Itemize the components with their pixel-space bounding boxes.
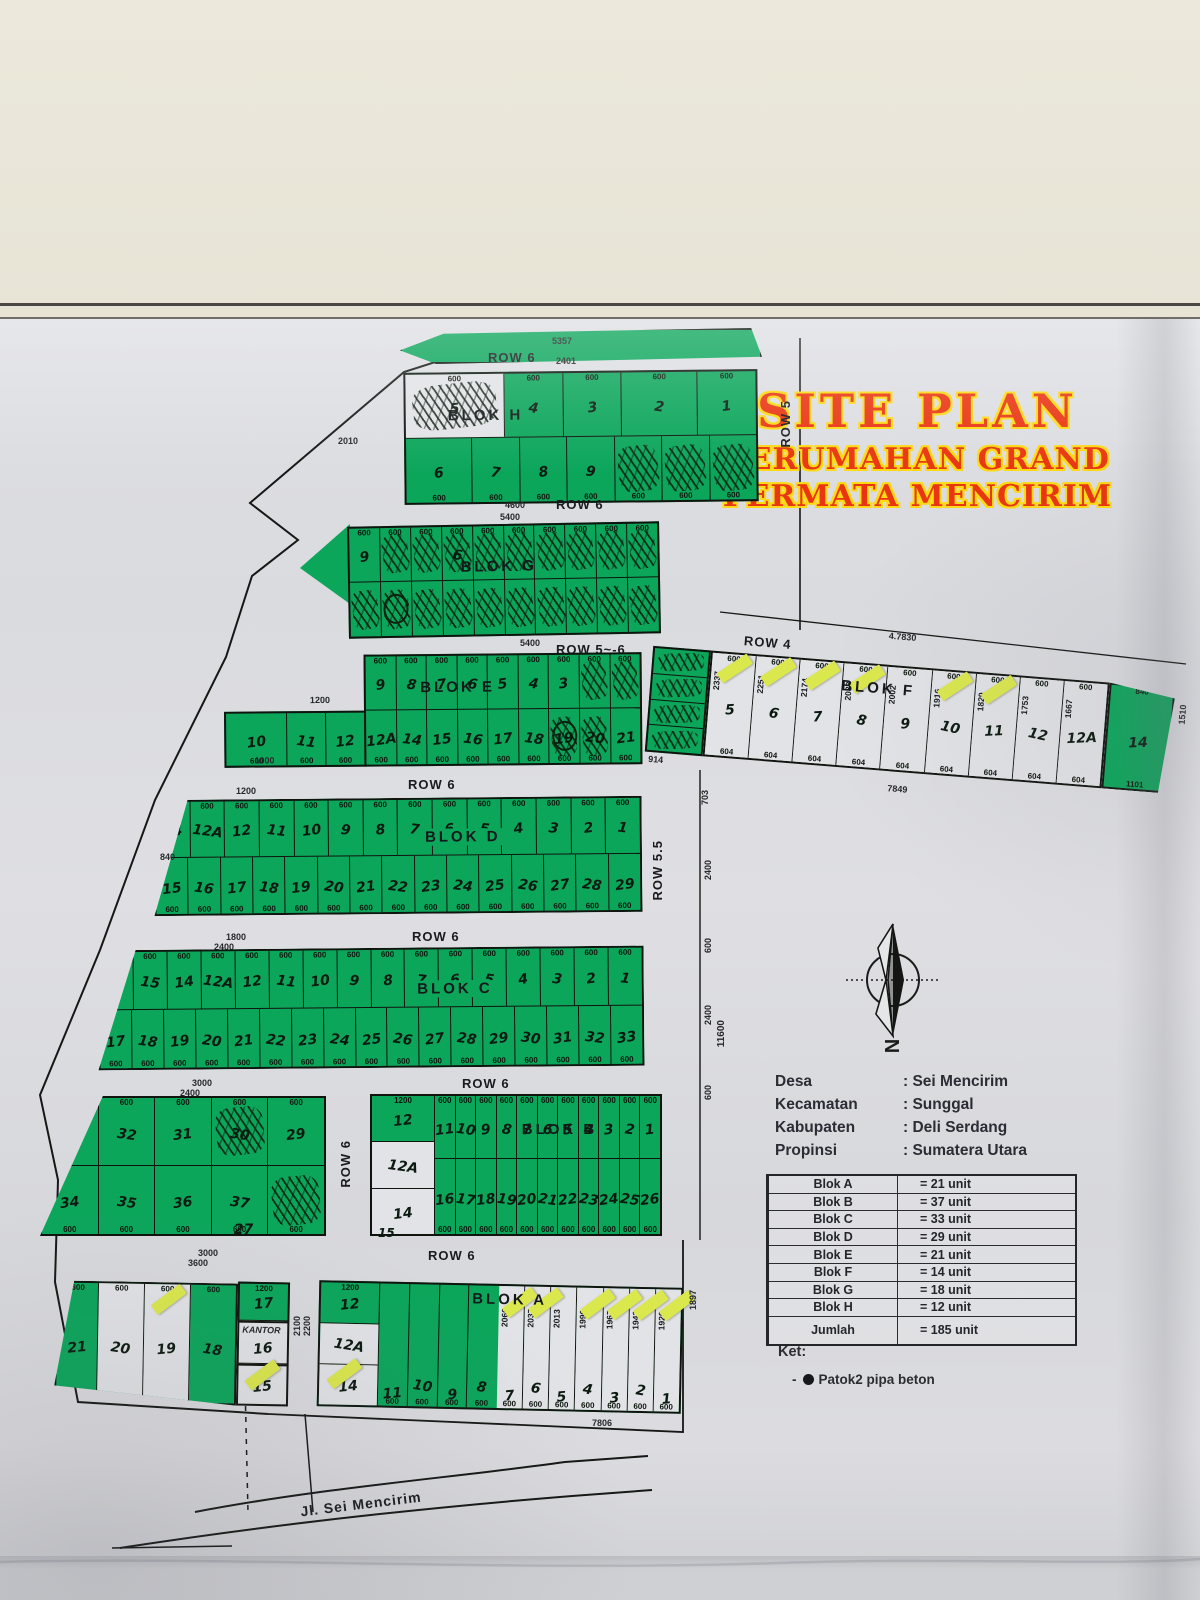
plot-cell: 60029 — [609, 854, 641, 910]
plot-dimension: 600 — [538, 1225, 558, 1234]
plot-dimension: 600 — [473, 949, 506, 958]
plot-number: 20 — [317, 877, 350, 897]
blok-f-cells: 6006042337560060422516600604217476006042… — [705, 653, 1108, 786]
plot-dimension: 600 — [456, 1225, 476, 1234]
plot-cell: 60020135 — [549, 1287, 578, 1410]
blok-a-office-column: 17 1200 KANTOR 16 15 — [236, 1282, 290, 1407]
plot-number: 7 — [796, 709, 840, 727]
plot-dimension: 600 — [396, 656, 426, 665]
plot-dimension: 600 — [442, 527, 472, 537]
plot-dimension: 600 — [541, 948, 574, 957]
plot-cell: 60027 — [544, 854, 577, 910]
plot-cell: 60011 — [287, 713, 326, 765]
plot-dimension: 600 — [435, 1096, 455, 1105]
plot-number: 3 — [536, 819, 571, 839]
plot-cell: 6005 — [405, 374, 505, 438]
plot-cell: 60021 — [350, 856, 383, 912]
plot-cell: 60014 — [167, 951, 201, 1008]
plot-cell: 60024 — [324, 1008, 356, 1066]
info-value: : Sunggal — [903, 1096, 974, 1119]
dim-4600: 4600 — [505, 500, 525, 510]
plot-cell: 60015 — [133, 952, 167, 1009]
plot-dimension: 600 — [620, 1096, 640, 1105]
plot-dimension: 600 — [42, 1225, 98, 1234]
row6-top-label: ROW 6 — [488, 350, 536, 365]
plot-dimension: 600 — [517, 1225, 537, 1234]
dim-3000-cb: 3000 — [192, 1078, 212, 1088]
plot-number: 33 — [610, 1028, 643, 1048]
plot-number: 6 — [751, 701, 797, 726]
plot-number: 36 — [154, 1192, 211, 1215]
plot-cell: 600 — [534, 525, 566, 579]
blok-a-left-row: 60021600206001960018 — [56, 1282, 236, 1403]
table-row: Blok H= 12 unit — [769, 1299, 1075, 1317]
plot-dimension: 600 — [563, 373, 621, 383]
plot-number: 16 — [188, 879, 221, 899]
plot-cell — [535, 579, 567, 634]
plot-dimension: 604 — [793, 752, 837, 764]
plot-cell: 6007 — [398, 800, 433, 855]
photo-of-site-plan-banner: { "title":{"line1":"SITE PLAN","line2":"… — [0, 0, 1200, 1600]
plot-cell: 6004 — [518, 655, 549, 708]
plot-number: 21 — [349, 877, 382, 897]
table-row: Blok A= 21 unit — [769, 1176, 1075, 1194]
plot-cell — [474, 580, 506, 635]
kantor-label: KANTOR — [242, 1325, 281, 1336]
plot-dimension: 2037 — [526, 1308, 536, 1327]
blok-a: 12001212A14 600116001060096008 600206076… — [317, 1280, 684, 1414]
plot-cell: 60010 — [303, 950, 337, 1007]
plot-cell: 60018 — [132, 1010, 164, 1068]
plot-dimension: 600 — [756, 656, 800, 668]
plot-number: 9 — [349, 548, 381, 568]
plot-dimension: 600 — [383, 903, 414, 912]
plot-dimension: 2060 — [499, 1308, 509, 1327]
plot-number: 25 — [355, 1030, 388, 1050]
plot-dimension: 600 — [318, 903, 349, 912]
plot-cell: 60011 — [269, 951, 303, 1008]
plot-cell: 6008 — [363, 800, 398, 855]
plot-cell: 6006 — [406, 438, 473, 503]
plot-dimension: 600 — [133, 952, 166, 961]
plot-dimension: 1943 — [630, 1311, 640, 1330]
plot-cell — [597, 578, 629, 633]
plot-dimension: 600 — [269, 951, 302, 960]
plot-cell: 60032 — [99, 1098, 156, 1165]
info-value: : Deli Serdang — [903, 1119, 1007, 1142]
blok-c: 60016600156001460012A6001260011600106009… — [97, 946, 644, 1071]
plot-number: 12 — [235, 972, 270, 992]
plot-cell: 60016 — [435, 1159, 456, 1234]
plot-dimension: 600 — [523, 1399, 548, 1409]
plot-cell: 60011 — [435, 1096, 456, 1158]
blok-b: 12001212A14 15 6001160010600960086007600… — [370, 1094, 662, 1236]
plot-dimension: 604 — [1013, 770, 1057, 782]
plot-dimension: 600 — [99, 1283, 144, 1293]
plot-dimension: 600 — [1020, 677, 1064, 689]
info-label: Kabupaten — [775, 1119, 903, 1142]
plot-number: 18 — [475, 1191, 496, 1209]
plot-cell: 6002 — [620, 1096, 641, 1158]
plot-dimension: 600 — [497, 1225, 517, 1234]
plot-number: 8 — [466, 1377, 497, 1397]
compass-rose-icon: N — [838, 918, 948, 1058]
plot-dimension: 600 — [640, 1225, 660, 1234]
plot-cell: 120012 — [320, 1282, 379, 1324]
plot-dimension: 600 — [476, 1225, 496, 1234]
plot-number: 14 — [371, 1202, 434, 1225]
legend-note-title: Ket: — [778, 1344, 806, 1360]
plot-dimension: 600 — [544, 901, 575, 910]
info-label: Desa — [775, 1073, 903, 1096]
plot-cell: 6007 — [472, 438, 520, 502]
dim-1897: 1897 — [688, 1290, 698, 1310]
plot-cell: 60025 — [620, 1159, 641, 1234]
plot-cell: 60025 — [479, 855, 512, 911]
plot-cell: 60010 — [407, 1284, 439, 1407]
plot-14-f-label: 14 — [1107, 734, 1170, 753]
plot-cell: 600 — [596, 524, 628, 578]
blok-e-row2: 60012A6001460015600166001760018600196002… — [366, 708, 640, 764]
plot-number: 12 — [320, 1294, 379, 1316]
plot-number: 15 — [426, 730, 457, 750]
plot-number: 19 — [143, 1339, 189, 1360]
plot-dimension: 600 — [504, 373, 562, 383]
plot-dimension: 2013 — [552, 1309, 562, 1328]
plot-number: 11 — [269, 972, 304, 992]
blok-e: 600106001160012 600960086007600660056004… — [224, 652, 643, 768]
plot-dimension: 600 — [228, 1058, 259, 1067]
plot-dimension: 2174 — [799, 678, 810, 698]
dim-840-f: 840 — [1111, 685, 1174, 699]
row55-label: ROW 5.5 — [650, 840, 665, 900]
plot-number: 3 — [598, 1121, 619, 1139]
plot-dimension: 600 — [577, 901, 608, 910]
plot-dimension: 600 — [518, 655, 548, 664]
plot-dimension: 600 — [428, 755, 458, 764]
plot-cell: 60019 — [285, 857, 318, 913]
plot-dimension: 600 — [324, 1057, 355, 1066]
plot-cell: 60021 — [538, 1159, 559, 1234]
plot-16-label: 16 — [238, 1339, 287, 1360]
plot-cell: 6001 — [609, 948, 642, 1005]
dim-2401: 2401 — [556, 356, 576, 366]
plot-cell: 60029 — [268, 1098, 324, 1165]
plot-dimension: 600 — [579, 1096, 599, 1105]
plot-number: 1 — [640, 1121, 661, 1139]
plot-dimension: 600 — [800, 660, 844, 672]
plot-number: 11 — [259, 821, 294, 841]
plot-number: 10 — [455, 1121, 477, 1140]
dim-1800: 1800 — [226, 932, 246, 942]
plot-cell: 60026 — [640, 1159, 660, 1234]
blok-c-label: BLOK C — [414, 980, 496, 998]
plot-dimension: 600 — [1064, 681, 1108, 693]
dim-3000-ba: 3000 — [198, 1248, 218, 1258]
plot-cell: 60018 — [189, 1285, 236, 1404]
plot-cell: 6002 — [571, 798, 606, 853]
plot-number: 8 — [496, 1121, 518, 1140]
plot-number: 22 — [382, 877, 415, 897]
plot-number: 27 — [543, 875, 576, 895]
plot-dimension: 600 — [337, 950, 370, 959]
plot-cell: 6003 — [541, 948, 575, 1005]
plot-dimension: 600 — [558, 1225, 578, 1234]
plot-dimension: 600 — [579, 1225, 599, 1234]
blok-d-label: BLOK D — [422, 828, 504, 846]
plot-cell: 60012A — [366, 710, 397, 764]
plot-cell: 60015 — [427, 710, 458, 764]
plot-dimension: 604 — [749, 749, 793, 761]
plot-cell: 6007 — [405, 949, 439, 1006]
plot-dimension: 600 — [407, 493, 472, 503]
plot-cell: 6001 — [698, 371, 756, 435]
plot-dimension: 600 — [549, 655, 579, 664]
plot-cell: 60036 — [155, 1166, 212, 1234]
plot-number: 22 — [259, 1031, 292, 1051]
plot-cell: 60019673 — [601, 1288, 630, 1411]
blok-c-row2: 6001760018600196002060021600226002360024… — [100, 1006, 642, 1069]
plot-dimension: 600 — [611, 753, 641, 762]
plot-number: 17 — [488, 729, 519, 749]
blok-e-label: BLOK E — [420, 678, 495, 696]
row4-label: ROW 4 — [743, 633, 792, 652]
plot-number: 31 — [546, 1028, 579, 1048]
dim-5357: 5357 — [552, 336, 572, 346]
plot-dimension: 600 — [497, 1096, 517, 1105]
info-label: Kecamatan — [775, 1096, 903, 1119]
plot-cell: 6008 — [520, 437, 568, 501]
plot-dimension: 600 — [380, 528, 410, 538]
row6-hg-label: ROW 6 — [556, 497, 604, 512]
plot-number: 21 — [227, 1031, 260, 1051]
plot-dimension: 600 — [476, 1096, 496, 1105]
plot-dimension: 600 — [201, 951, 234, 960]
plot-cell: 60012 — [235, 951, 269, 1008]
plot-cell: 60012A — [201, 951, 235, 1008]
plot-dimension: 600 — [294, 801, 328, 810]
plot-cell: 60023 — [415, 856, 448, 912]
dim-1101-f: 1101 — [1103, 777, 1166, 791]
plot-dimension: 600 — [458, 755, 488, 764]
plot-dimension: 600 — [405, 949, 438, 958]
plot-dimension: 1829 — [975, 692, 986, 712]
plot-dimension: 600 — [502, 799, 536, 808]
plot-dimension: 600 — [350, 903, 381, 912]
plot-number: 9 — [328, 821, 363, 841]
plot-dimension: 600 — [286, 904, 317, 913]
plot-number: 8 — [519, 462, 567, 484]
plot-number: 9 — [475, 1121, 496, 1139]
plot-cell: 6003 — [563, 373, 622, 437]
plot-dimension: 600 — [447, 902, 478, 911]
plot-number: 10 — [302, 972, 337, 992]
plot-number: 3 — [540, 970, 575, 990]
plot-dimension: 600 — [534, 525, 564, 535]
plot-number: 18 — [131, 1032, 164, 1052]
plot-dimension: 600 — [575, 1401, 600, 1411]
dim-1000-e: 1000 — [254, 755, 274, 765]
plot-cell: 6003 — [599, 1096, 620, 1158]
plot-cell: 600 — [615, 436, 663, 500]
plot-dimension: 600 — [415, 903, 446, 912]
plot-cell: 60023 — [292, 1008, 324, 1066]
plot-dimension: 600 — [888, 667, 932, 679]
plot-number: 35 — [98, 1192, 155, 1216]
row6-ba-label: ROW 6 — [428, 1248, 476, 1263]
plot-number: 6 — [522, 1379, 549, 1399]
plot-number: 14 — [318, 1376, 377, 1398]
plot-dimension: 1967 — [604, 1310, 614, 1329]
plot-dimension: 600 — [288, 756, 326, 765]
plot-number: 1 — [605, 818, 640, 838]
plot-number: 12 — [371, 1109, 434, 1132]
dim-3600-ba: 3600 — [188, 1258, 208, 1268]
plot-cell: 60022 — [382, 856, 415, 912]
plot-number: 6 — [406, 461, 473, 485]
plot-number: 3 — [601, 1389, 627, 1407]
plot-dimension: 600 — [405, 374, 503, 384]
plot-dimension: 600 — [452, 1056, 483, 1065]
plot-cell: 60010 — [456, 1096, 477, 1158]
plot-dimension: 600 — [609, 901, 640, 910]
plot-dimension: 600 — [349, 528, 379, 538]
plot-number: 10 — [225, 730, 287, 754]
plot-dimension: 600 — [411, 527, 441, 537]
dim-600-r2: 600 — [703, 1085, 713, 1100]
plot-number: 2 — [627, 1381, 654, 1401]
plot-cell — [443, 581, 475, 636]
dim-7849: 7849 — [887, 783, 908, 795]
blok-b-annex-row2: 60034600356003660037600 — [42, 1166, 324, 1234]
plot-cell: 600 — [662, 436, 710, 500]
plot-dimension: 600 — [610, 654, 640, 663]
plot-cell: 6001 — [606, 798, 640, 853]
plot-cell: 60019 — [497, 1159, 518, 1234]
plot-number: 12A — [319, 1333, 379, 1358]
plot-number: 20 — [579, 728, 610, 748]
plot-cell: 60031 — [155, 1098, 212, 1165]
plot-number: 12A — [190, 822, 225, 842]
plot-dimension: 600 — [327, 756, 365, 765]
plot-cell: 60028 — [576, 854, 609, 910]
plot-dimension: 600 — [253, 904, 284, 913]
blok-a-left-column: 12001212A14 — [319, 1282, 380, 1405]
blok-h-row2: 6006600760086009600600600 — [406, 435, 757, 503]
plot-cell: 600604166712A — [1056, 681, 1107, 786]
plot-cell: 6009 — [349, 528, 381, 582]
plot-dimension: 1916 — [931, 689, 942, 709]
plot-dimension: 600 — [517, 1096, 537, 1105]
plot-number: 17 — [455, 1191, 477, 1210]
plot-cell: 60024 — [447, 855, 480, 911]
dim-600-r1: 600 — [703, 938, 713, 953]
banner-bottom-shadow — [0, 1556, 1200, 1600]
plot-cell: 60035 — [99, 1166, 156, 1234]
banner-rod-line — [0, 303, 1200, 306]
plot-dimension: 600 — [292, 1057, 323, 1066]
plot-cell: 6004 — [507, 949, 541, 1006]
plot-cell: 12A — [372, 1142, 434, 1188]
plot-cell: 60017 — [488, 709, 519, 763]
plot-cell: 60021 — [610, 708, 640, 762]
plot-dimension: 600 — [932, 670, 976, 682]
plot-cell: 60017 — [456, 1159, 477, 1234]
plot-cell: 60025 — [356, 1008, 388, 1066]
plot-number: 20 — [516, 1191, 537, 1209]
plot-cell: 6001 — [640, 1096, 660, 1158]
plot-number: 17 — [220, 878, 253, 898]
plot-dimension: 600 — [627, 523, 657, 533]
plot-dimension: 604 — [837, 756, 881, 768]
plot-dimension: 600 — [611, 1055, 642, 1064]
plot-number: 9 — [884, 716, 928, 734]
dim-2400-r1: 2400 — [703, 860, 713, 880]
plot-cell — [381, 582, 413, 637]
plot-dimension: 600 — [260, 1058, 291, 1067]
plot-cell: 60029 — [483, 1007, 515, 1065]
plot-cell: 6003 — [537, 798, 572, 853]
plot-dimension: 600 — [99, 1225, 155, 1234]
plot-number: 23 — [578, 1191, 600, 1210]
plot-dimension: 604 — [705, 745, 749, 757]
plot-dimension: 600 — [190, 802, 224, 811]
plot-dimension: 600 — [398, 800, 432, 809]
blok-e-row1: 6009600860076006600560046003600600 — [366, 654, 640, 710]
plot-dimension: 600 — [538, 1096, 558, 1105]
plot-dimension: 600 — [439, 949, 472, 958]
plot-number: 30 — [211, 1123, 268, 1147]
plot-15-label-b: 15 — [378, 1226, 395, 1240]
plot-number: 1 — [697, 394, 756, 417]
plot-number: 25 — [619, 1191, 641, 1210]
plot-number: 16 — [434, 1191, 455, 1209]
plot-number: 11 — [287, 731, 327, 752]
plot-dimension: 600 — [712, 653, 756, 665]
plot-number: 18 — [252, 878, 285, 898]
plot-number: 1 — [653, 1390, 679, 1408]
plot-cell: 600 — [610, 654, 640, 707]
plot-dimension: 600 — [100, 1059, 131, 1068]
plot-dimension: 600 — [132, 1059, 163, 1068]
info-label: Propinsi — [775, 1142, 903, 1165]
plot-number: 14 — [167, 973, 202, 993]
plot-cell: 60011 — [259, 801, 294, 856]
dim-703: 703 — [700, 790, 710, 805]
table-row: Blok B= 37 unit — [769, 1194, 1075, 1212]
plot-dimension: 600 — [433, 799, 467, 808]
plot-number: 9 — [567, 461, 615, 483]
row6-dc-label: ROW 6 — [412, 929, 460, 944]
plot-number: 12A — [365, 730, 396, 750]
plot-number: 10 — [293, 821, 328, 841]
plot-number: 4 — [501, 819, 536, 839]
plot-dimension: 600 — [609, 948, 642, 957]
plot-dimension: 600 — [268, 1098, 324, 1107]
plot-dimension: 600 — [420, 1056, 451, 1065]
plot-dimension: 600 — [550, 754, 580, 763]
table-row: Blok E= 21 unit — [769, 1246, 1075, 1264]
plot-dimension: 600 — [427, 656, 457, 665]
plot-number: 3 — [548, 674, 579, 694]
plot-cell: 60031 — [547, 1006, 579, 1064]
plot-cell: 6005 — [467, 799, 502, 854]
plot-number: 25 — [479, 876, 512, 896]
plot-dimension: 600 — [844, 663, 888, 675]
plot-dimension: 600 — [504, 525, 534, 535]
plot-number: 12A — [1060, 730, 1104, 748]
plot-cell: 6009 — [329, 800, 364, 855]
